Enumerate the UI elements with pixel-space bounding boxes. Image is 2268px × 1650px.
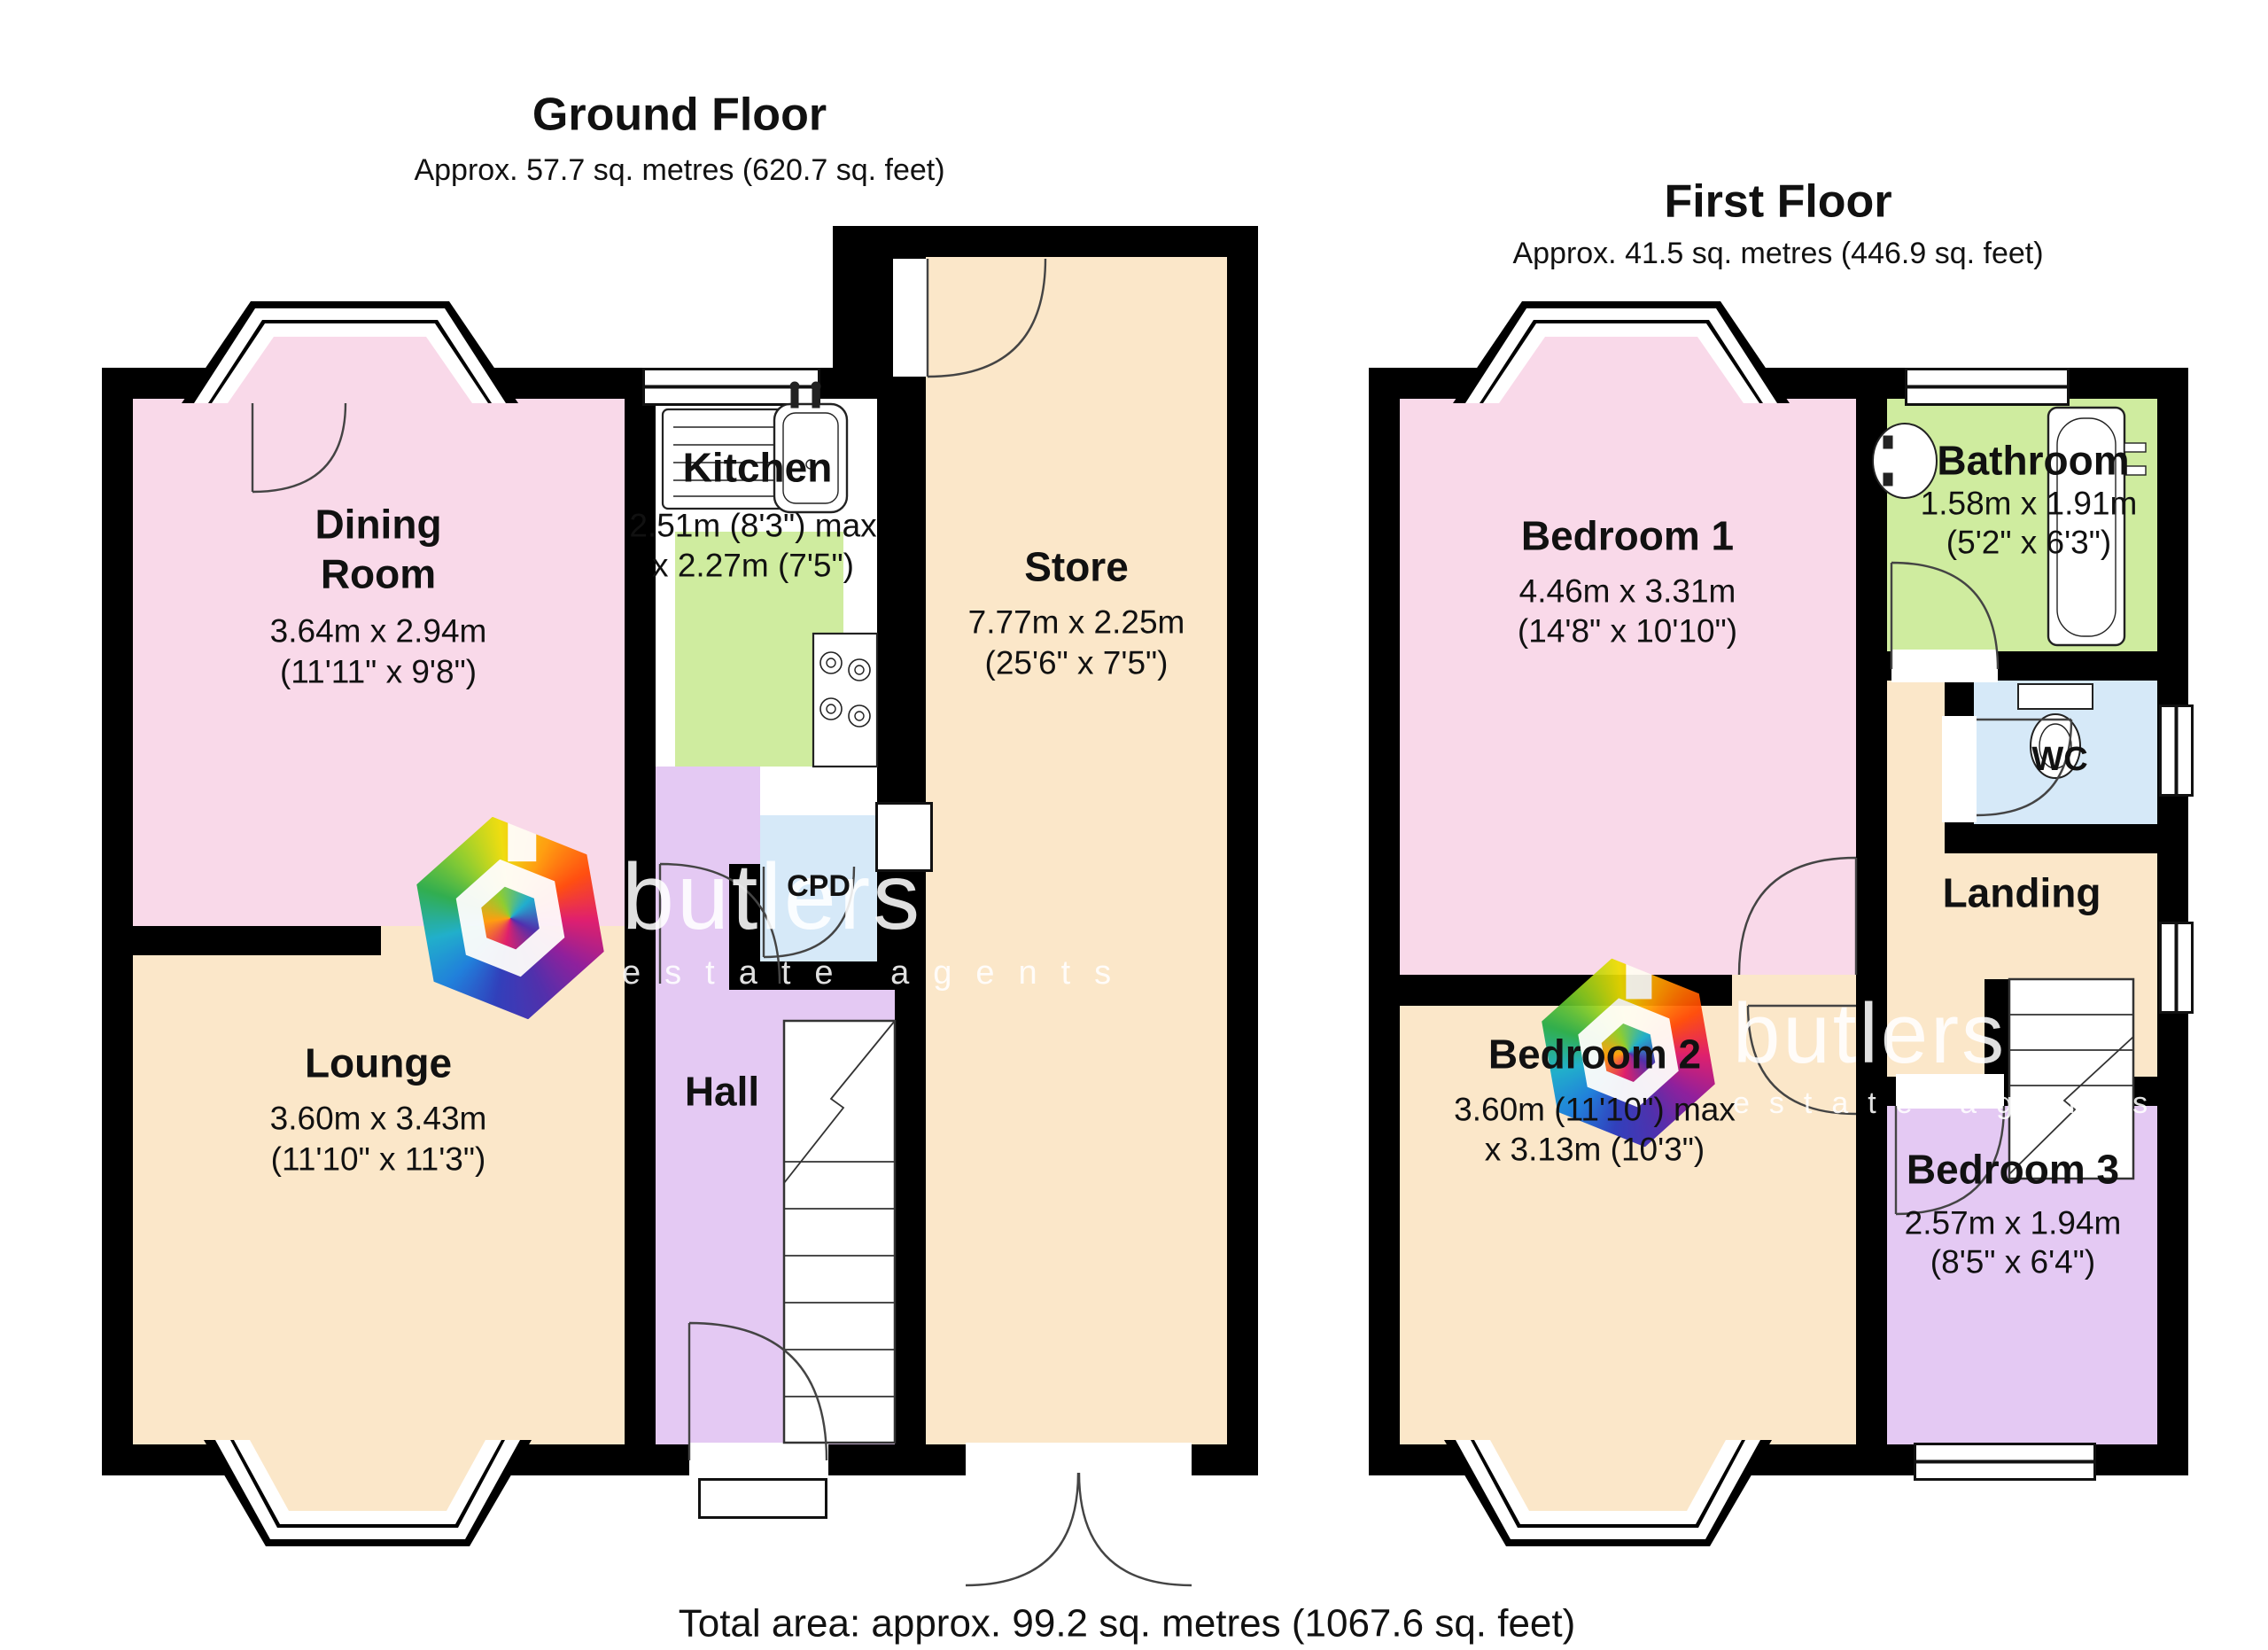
hall-label: Hall bbox=[685, 1070, 759, 1114]
bedroom1-room bbox=[1400, 399, 1856, 975]
lounge-dims-m: 3.60m x 3.43m bbox=[270, 1101, 487, 1135]
lounge-dims-ft: (11'10" x 11'3") bbox=[271, 1141, 486, 1176]
kitchen-lower bbox=[760, 767, 877, 815]
bedroom2-label: Bedroom 2 bbox=[1488, 1033, 1701, 1077]
watermark-tagline: estate agents bbox=[1733, 1086, 2167, 1121]
wc-window bbox=[2159, 704, 2194, 797]
bathroom-dims-m: 1.58m x 1.91m bbox=[1921, 486, 2138, 520]
store-dims-m: 7.77m x 2.25m bbox=[968, 604, 1185, 639]
dining-room-label2: Room bbox=[321, 553, 436, 596]
bedroom2-dims-1: 3.60m (11'10") max bbox=[1454, 1092, 1736, 1126]
front-door-opening bbox=[689, 1443, 828, 1478]
first-floor-title: First Floor bbox=[1664, 177, 1891, 226]
hall-room bbox=[656, 990, 895, 1444]
watermark-text: butlers estate agents bbox=[1733, 985, 2167, 1121]
wc-door-opening bbox=[1942, 716, 1977, 822]
watermark-text: butlers estate agents bbox=[622, 844, 1135, 992]
bathroom-window bbox=[1905, 368, 2070, 406]
watermark-tagline: estate agents bbox=[622, 954, 1135, 992]
bedroom3-window bbox=[1914, 1443, 2096, 1481]
front-door-step bbox=[698, 1478, 827, 1519]
store-door-opening bbox=[893, 259, 928, 377]
store-label: Store bbox=[1024, 546, 1129, 589]
landing-label: Landing bbox=[1943, 872, 2101, 915]
lounge-label: Lounge bbox=[305, 1042, 452, 1086]
bathroom-dims-ft: (5'2" x 6'3") bbox=[1946, 525, 2111, 559]
bedroom2-bay-window bbox=[1444, 1440, 1772, 1546]
butlers-watermark: butlers estate agents bbox=[416, 815, 1135, 1021]
bedroom1-dims-ft: (14'8" x 10'10") bbox=[1518, 613, 1737, 648]
ground-floor-title: Ground Floor bbox=[532, 90, 827, 139]
total-area-text: Total area: approx. 99.2 sq. metres (106… bbox=[679, 1604, 1576, 1646]
bedroom3-dims-ft: (8'5" x 6'4") bbox=[1930, 1244, 2095, 1279]
dining-bay-window bbox=[182, 301, 518, 403]
floorplan-canvas: Ground Floor Approx. 57.7 sq. metres (62… bbox=[0, 0, 2268, 1650]
bedroom2-dims-2: x 3.13m (10'3") bbox=[1485, 1132, 1705, 1166]
ground-floor-area: Approx. 57.7 sq. metres (620.7 sq. feet) bbox=[414, 154, 944, 186]
bathroom-door-opening bbox=[1891, 650, 1998, 682]
lounge-room bbox=[133, 955, 625, 1444]
watermark-brand: butlers bbox=[1733, 985, 2167, 1083]
wc-label: WC bbox=[2031, 742, 2087, 777]
dining-room-dims-ft: (11'11" x 9'8") bbox=[280, 654, 477, 689]
kitchen-dims-2: x 2.27m (7'5") bbox=[652, 548, 854, 582]
store-french-door-opening bbox=[966, 1443, 1192, 1478]
first-floor-area: Approx. 41.5 sq. metres (446.9 sq. feet) bbox=[1512, 237, 2043, 269]
kitchen-dims-1: 2.51m (8'3") max bbox=[629, 508, 876, 542]
bedroom3-dims-m: 2.57m x 1.94m bbox=[1905, 1205, 2122, 1240]
store-dims-ft: (25'6" x 7'5") bbox=[985, 645, 1169, 680]
kitchen-window bbox=[642, 368, 820, 406]
cpd-label: CPD bbox=[787, 870, 850, 902]
bedroom1-label: Bedroom 1 bbox=[1521, 515, 1734, 558]
bedroom3-label: Bedroom 3 bbox=[1907, 1148, 2119, 1192]
bedroom1-dims-m: 4.46m x 3.31m bbox=[1519, 573, 1736, 608]
bathroom-label: Bathroom bbox=[1937, 440, 2129, 483]
bedroom1-bay-window bbox=[1453, 301, 1790, 403]
kitchen-label: Kitchen bbox=[683, 447, 833, 490]
dining-room-label: Dining bbox=[315, 503, 441, 547]
wall bbox=[1945, 824, 2157, 853]
dining-room-dims-m: 3.64m x 2.94m bbox=[270, 613, 487, 648]
butlers-logo-icon bbox=[400, 800, 620, 1035]
lounge-bay-window bbox=[204, 1440, 532, 1546]
watermark-brand: butlers bbox=[622, 844, 1135, 951]
